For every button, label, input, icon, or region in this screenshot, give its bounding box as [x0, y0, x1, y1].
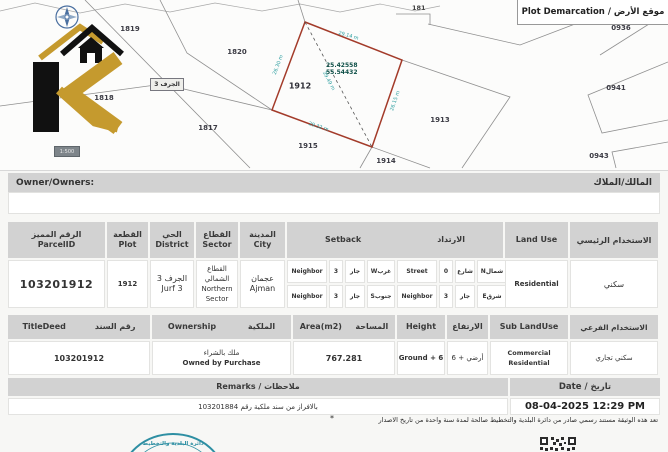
sublanduse-en-value: CommercialResidential — [490, 341, 568, 375]
header-district: الحيDistrict — [150, 222, 194, 258]
asterisk-icon: * — [330, 416, 334, 422]
plot-label-1915: 1915 — [298, 142, 317, 150]
stamp-text: دائرة البلدية والتخطيط — [118, 441, 228, 447]
plot-demarcation-document: Plot Demarcation / موقع الأرض 181 1819 1… — [0, 0, 668, 452]
header-city: المدينةCity — [240, 222, 285, 258]
plot-label-0936: 0936 — [611, 24, 630, 32]
owner-label-en: Owner/Owners: — [16, 178, 94, 188]
setback-value: 3 — [439, 285, 453, 308]
header-area: Area(m2)المساحة — [293, 315, 395, 339]
cadastral-map: Plot Demarcation / موقع الأرض 181 1819 1… — [0, 0, 668, 171]
deed-header-row: TitleDeedرقم السند Ownershipالملكية Area… — [8, 315, 658, 339]
setback-unit: جار — [345, 260, 365, 283]
plot-label-1913: 1913 — [430, 116, 449, 124]
parcel-boundaries — [0, 0, 668, 168]
sublanduse-ar-value: سكني تجاري — [570, 341, 658, 375]
landuse-en-value: Residential — [505, 260, 568, 308]
setback-type: Neighbor — [397, 285, 437, 308]
remarks-header-row: Remarks / ملاحظات Date / تاريخ — [8, 378, 660, 396]
city-value: عجمانAjman — [240, 260, 285, 308]
plot-value: 1912 — [107, 260, 148, 308]
plot-label-1914: 1914 — [376, 157, 395, 165]
plot-label-1818: 1818 — [94, 94, 113, 102]
plot-label-0941: 0941 — [606, 84, 625, 92]
setback-direction: شمالN — [477, 260, 507, 283]
info-header-row: الرقم المميزParcelID القطعةPlot الحيDist… — [8, 222, 658, 258]
header-height-en: Height — [397, 315, 445, 339]
setback-value: 3 — [329, 285, 343, 308]
setback-direction: جنوبS — [367, 285, 395, 308]
date-value: 08-04-2025 12:29 PM — [510, 398, 660, 415]
plot-label-1819: 1819 — [120, 25, 139, 33]
setback-direction: غربW — [367, 260, 395, 283]
subject-coordinates: 25.42558 55.54432 — [326, 62, 358, 76]
remarks-value: بالافراز من سند ملكية رقم 103201884 — [8, 398, 508, 415]
setback-unit: جار — [345, 285, 365, 308]
header-sublanduse-ar: الاستخدام الفرعي — [570, 315, 658, 339]
map-title: Plot Demarcation / موقع الأرض — [517, 0, 668, 25]
plot-label-1820: 1820 — [227, 48, 246, 56]
district-tag: الجرف 3 — [150, 78, 184, 91]
brand-logo — [33, 27, 122, 132]
plot-label-0943: 0943 — [589, 152, 608, 160]
header-parcel-id: الرقم المميزParcelID — [8, 222, 105, 258]
area-value: 767.281 — [293, 341, 395, 375]
header-landuse-en: Land Use — [505, 222, 568, 258]
header-height-ar: الارتفاع — [447, 315, 488, 339]
header-setback: Setbackالارتداد — [287, 222, 503, 258]
scale-badge: 1:500 — [54, 146, 80, 157]
header-ownership: Ownershipالملكية — [152, 315, 291, 339]
owner-label-ar: المالك/الملاك — [593, 178, 652, 188]
sector-value: القطاع الشماليNorthern Sector — [196, 260, 238, 308]
info-value-row: 103201912 1912 الجرف 3Jurf 3 القطاع الشم… — [8, 260, 658, 308]
landuse-ar-value: سكني — [570, 260, 658, 308]
owner-value-field[interactable] — [8, 192, 660, 214]
compass-icon — [56, 6, 78, 28]
district-value: الجرف 3Jurf 3 — [150, 260, 194, 308]
header-remarks: Remarks / ملاحظات — [8, 378, 508, 396]
setback-unit: جار — [455, 285, 475, 308]
height-en-value: Ground + 6 — [397, 341, 445, 375]
remarks-value-row: بالافراز من سند ملكية رقم 103201884 08-0… — [8, 398, 660, 415]
validity-footnote: * تعد هذه الوثيقة مستند رسمي صادر من دائ… — [330, 416, 658, 424]
stamp-circle — [118, 428, 228, 452]
titledeed-value: 103201912 — [8, 341, 150, 375]
setback-type: Street — [397, 260, 437, 283]
header-titledeed: TitleDeedرقم السند — [8, 315, 150, 339]
setback-direction: شرقE — [477, 285, 507, 308]
plot-label-1912: 1912 — [289, 82, 311, 91]
parcel-id-value: 103201912 — [8, 260, 105, 308]
header-sector: القطاعSector — [196, 222, 238, 258]
setback-value: 3 — [329, 260, 343, 283]
height-ar-value: أرضي + 6 — [447, 341, 488, 375]
qr-code — [540, 437, 576, 452]
header-plot: القطعةPlot — [107, 222, 148, 258]
setback-value: 0 — [439, 260, 453, 283]
official-stamp: دائرة البلدية والتخطيط — [118, 428, 228, 452]
setback-type: Neighbor — [287, 260, 327, 283]
setback-values: Neighbor 3 جار غربW Street 0 شارع شمالN … — [287, 260, 503, 308]
plot-label-1817: 1817 — [198, 124, 217, 132]
ownership-value: ملك بالشراءOwned by Purchase — [152, 341, 291, 375]
header-date: Date / تاريخ — [510, 378, 660, 396]
header-sublanduse-en: Sub LandUse — [490, 315, 568, 339]
deed-value-row: 103201912 ملك بالشراءOwned by Purchase 7… — [8, 341, 658, 375]
setback-type: Neighbor — [287, 285, 327, 308]
header-landuse-ar: الاستخدام الرئيسي — [570, 222, 658, 258]
setback-unit: شارع — [455, 260, 475, 283]
owner-header: Owner/Owners: المالك/الملاك — [8, 173, 660, 192]
plot-label-181: 181 — [412, 4, 426, 12]
